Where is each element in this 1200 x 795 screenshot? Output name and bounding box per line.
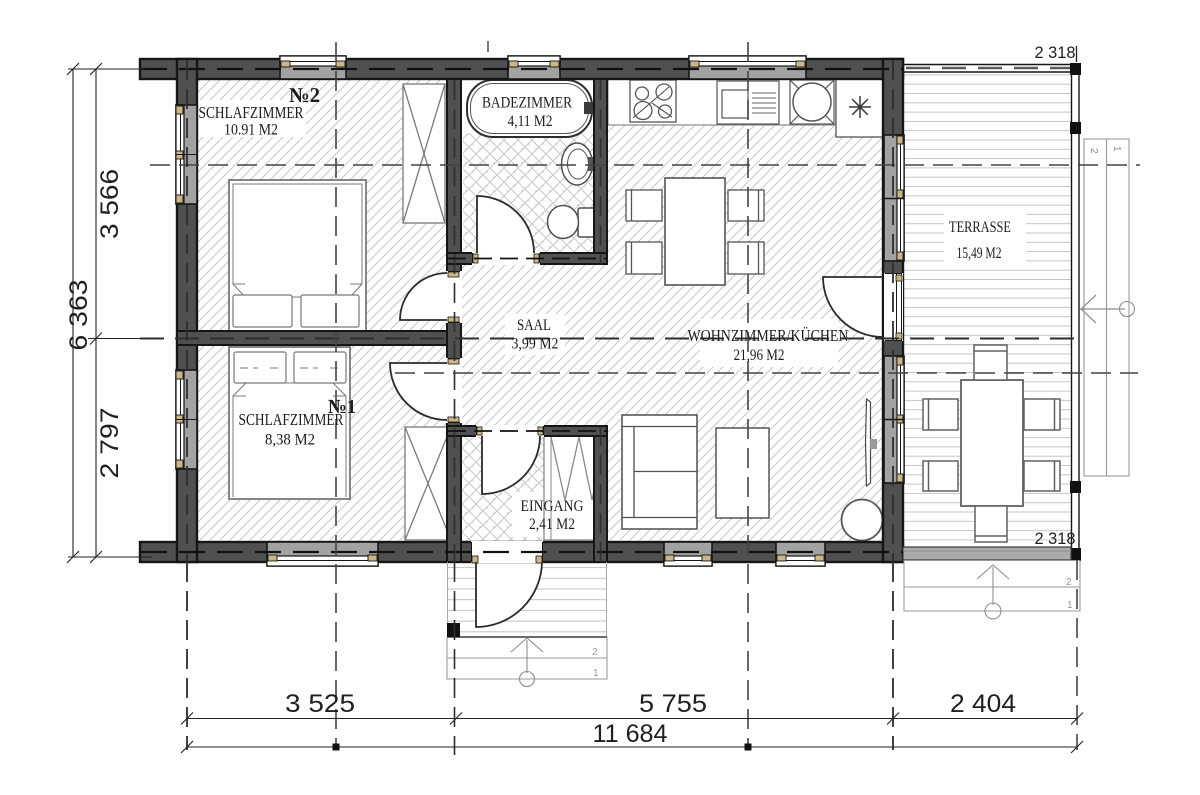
svg-text:4,11 M2: 4,11 M2 bbox=[508, 113, 553, 130]
svg-text:11 684: 11 684 bbox=[593, 720, 668, 748]
svg-text:2,41 M2: 2,41 M2 bbox=[529, 516, 575, 533]
svg-text:2 404: 2 404 bbox=[950, 690, 1016, 718]
svg-text:10.91 M2: 10.91 M2 bbox=[224, 122, 278, 139]
svg-text:SCHLAFZIMMER: SCHLAFZIMMER bbox=[199, 103, 304, 122]
svg-text:3 566: 3 566 bbox=[96, 169, 124, 239]
svg-text:3,99 M2: 3,99 M2 bbox=[512, 336, 559, 353]
svg-text:15,49 M2: 15,49 M2 bbox=[957, 245, 1002, 262]
svg-text:5 755: 5 755 bbox=[639, 690, 707, 718]
svg-text:2 318: 2 318 bbox=[1035, 530, 1076, 548]
svg-text:3 525: 3 525 bbox=[285, 690, 355, 718]
svg-text:21,96 M2: 21,96 M2 bbox=[734, 347, 785, 364]
svg-text:1: 1 bbox=[593, 668, 599, 679]
svg-text:2: 2 bbox=[1088, 148, 1099, 154]
svg-text:2: 2 bbox=[1066, 577, 1072, 588]
svg-text:2: 2 bbox=[592, 647, 598, 658]
svg-text:1: 1 bbox=[1111, 146, 1122, 152]
svg-text:1: 1 bbox=[1067, 600, 1073, 611]
svg-text:2 318: 2 318 bbox=[1035, 44, 1076, 62]
svg-text:WOHNZIMMER/KÜCHEN: WOHNZIMMER/KÜCHEN bbox=[688, 326, 849, 345]
svg-text:BADEZIMMER: BADEZIMMER bbox=[482, 95, 572, 112]
svg-text:SAAL: SAAL bbox=[517, 317, 551, 334]
svg-text:SCHLAFZIMMER: SCHLAFZIMMER bbox=[239, 410, 344, 429]
svg-text:8,38 M2: 8,38 M2 bbox=[265, 432, 315, 449]
svg-text:EINGANG: EINGANG bbox=[521, 498, 584, 515]
svg-text:TERRASSE: TERRASSE bbox=[949, 219, 1011, 236]
svg-text:2 797: 2 797 bbox=[96, 408, 124, 479]
svg-text:6 363: 6 363 bbox=[65, 280, 93, 351]
